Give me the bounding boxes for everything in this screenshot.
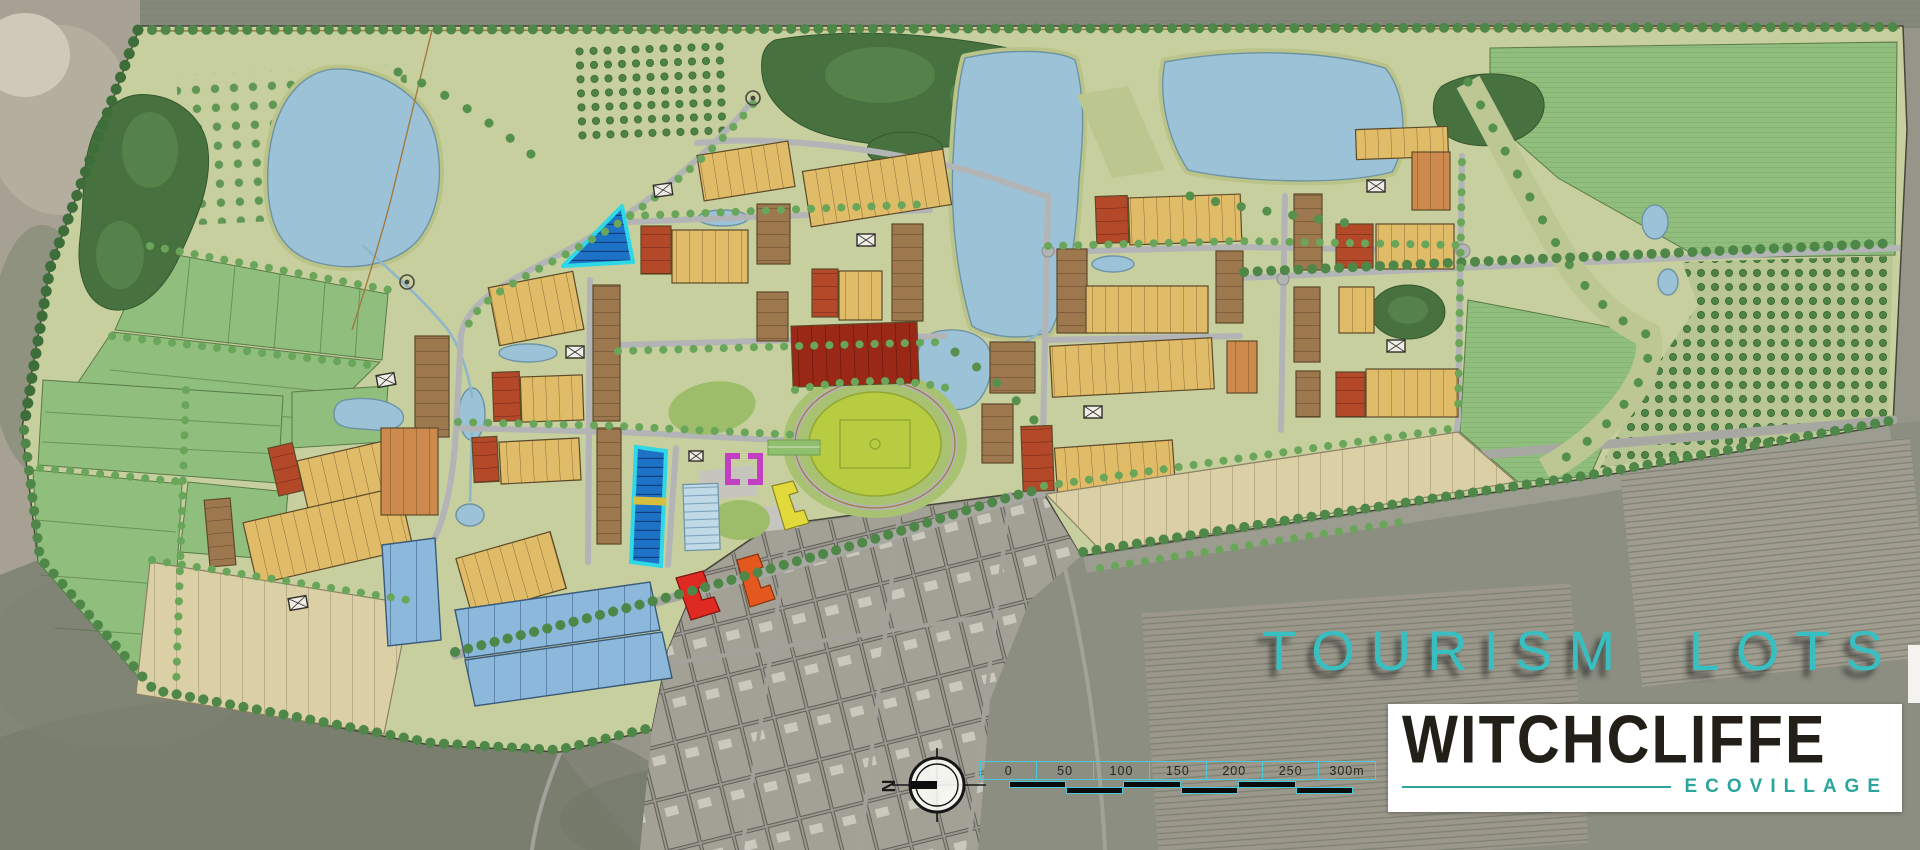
greenhouse-rows: [683, 483, 720, 550]
page-title: TOURISM LOTS: [1262, 618, 1899, 683]
tourism-lot-main-street: [631, 447, 666, 566]
witchcliffe-ecovillage-logo: WITCHCLIFFE ECOVILLAGE: [1388, 704, 1902, 812]
cropped-panel-edge: [1908, 645, 1920, 703]
scale-label: 0: [980, 761, 1037, 780]
masterplan-map-page: N TOURISM LOTS WITCHCLIFFE ECOVILLAGE 0 …: [0, 0, 1920, 850]
scale-bar-segments: [1009, 781, 1382, 796]
scale-bar-labels: 0 50 100 150 200 250 300m: [980, 761, 1382, 780]
scale-label: 50: [1036, 761, 1093, 780]
dark-red-lot-block: [791, 322, 919, 387]
scale-label: 100: [1093, 761, 1150, 780]
north-east-dam: [1163, 53, 1403, 181]
scale-label: 200: [1206, 761, 1263, 780]
scale-label: 300m: [1318, 761, 1375, 780]
logo-tagline-text: ECOVILLAGE: [1684, 776, 1888, 798]
scale-label: 250: [1262, 761, 1319, 780]
logo-brand-text: WITCHCLIFFE: [1402, 705, 1907, 776]
scale-bar: 0 50 100 150 200 250 300m: [980, 761, 1382, 796]
compass-north-label: N: [878, 780, 898, 793]
logo-divider-line: [1402, 786, 1671, 788]
scale-label: 150: [1149, 761, 1206, 780]
